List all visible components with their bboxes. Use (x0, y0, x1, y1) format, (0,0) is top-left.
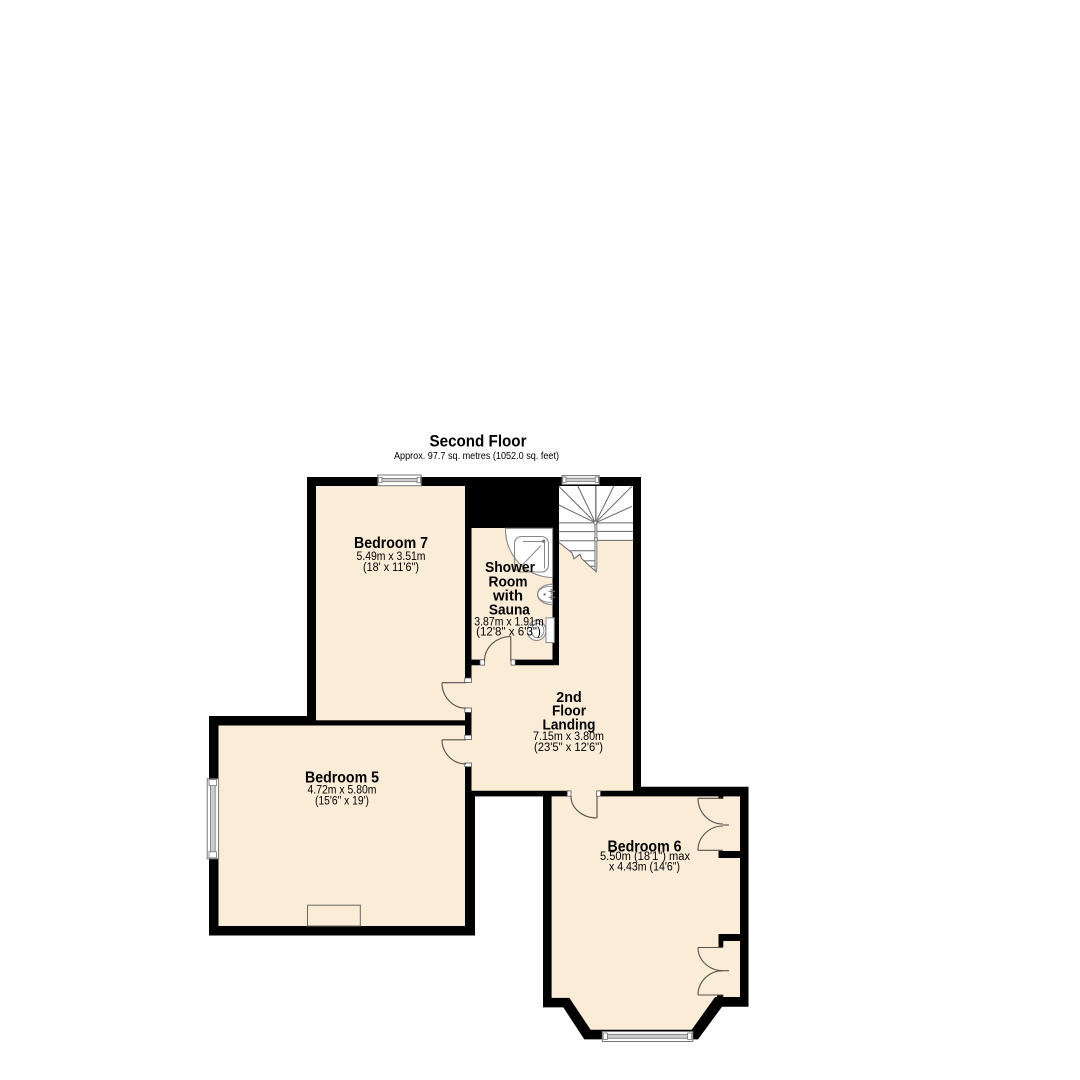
svg-text:(18' x 11'6"): (18' x 11'6") (363, 562, 419, 574)
svg-text:Bedroom 7: Bedroom 7 (354, 535, 428, 552)
svg-text:5.49m x 3.51m: 5.49m x 3.51m (357, 551, 426, 563)
svg-text:(15'6" x 19'): (15'6" x 19') (315, 796, 369, 808)
svg-text:(23'5" x 12'6"): (23'5" x 12'6") (534, 742, 603, 754)
svg-text:x 4.43m (14'6"): x 4.43m (14'6") (609, 862, 680, 874)
svg-text:7.15m x 3.80m: 7.15m x 3.80m (533, 731, 604, 743)
svg-text:Approx. 97.7 sq. metres (1052.: Approx. 97.7 sq. metres (1052.0 sq. feet… (394, 451, 559, 462)
svg-text:(12'8" x 6'3"): (12'8" x 6'3") (476, 627, 541, 639)
svg-text:Second Floor: Second Floor (430, 433, 528, 451)
